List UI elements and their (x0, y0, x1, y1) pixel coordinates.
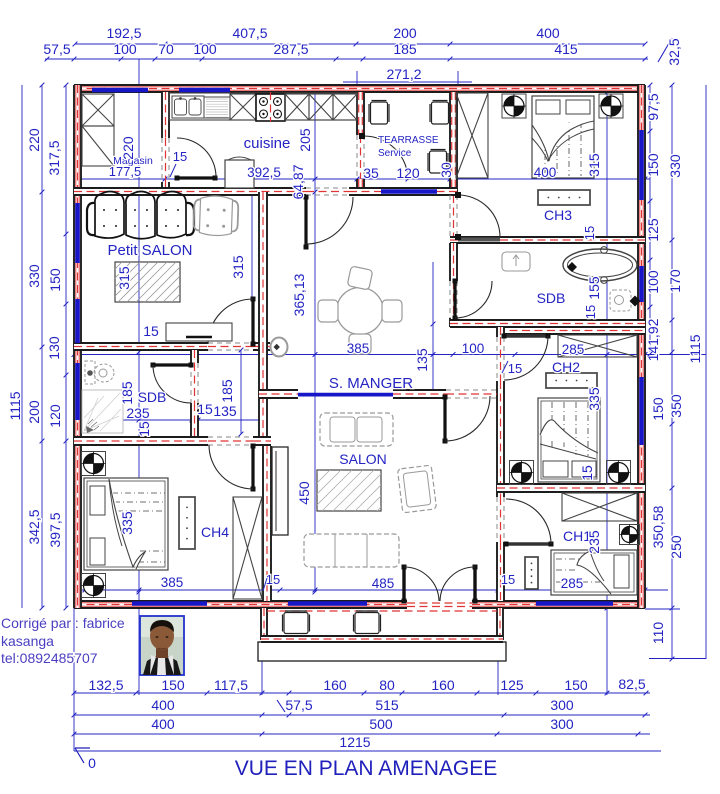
svg-text:70: 70 (158, 41, 174, 57)
svg-text:317,5: 317,5 (46, 140, 62, 175)
svg-text:385: 385 (161, 575, 184, 590)
svg-text:342,5: 342,5 (26, 509, 42, 544)
svg-text:100: 100 (462, 341, 485, 356)
svg-text:120: 120 (47, 404, 63, 428)
svg-text:CH4: CH4 (201, 524, 229, 540)
svg-text:200: 200 (393, 25, 417, 41)
svg-text:200: 200 (26, 400, 42, 424)
svg-text:80: 80 (379, 677, 395, 693)
svg-text:150: 150 (564, 677, 588, 693)
svg-text:315: 315 (230, 255, 246, 279)
svg-text:385: 385 (347, 341, 370, 356)
svg-text:15: 15 (501, 572, 515, 587)
svg-text:15: 15 (579, 465, 595, 481)
svg-text:100: 100 (645, 270, 661, 294)
svg-text:15: 15 (136, 421, 152, 437)
svg-text:400: 400 (151, 697, 175, 713)
svg-text:235: 235 (586, 530, 602, 554)
svg-text:141,92: 141,92 (645, 318, 661, 361)
svg-text:407,5: 407,5 (232, 25, 267, 41)
svg-text:315: 315 (586, 153, 602, 177)
svg-text:15: 15 (143, 323, 159, 339)
svg-text:330: 330 (26, 264, 42, 288)
svg-text:15: 15 (508, 361, 522, 376)
svg-text:287,5: 287,5 (273, 41, 308, 57)
svg-text:235: 235 (126, 405, 150, 421)
svg-text:300: 300 (550, 697, 574, 713)
svg-text:132,5: 132,5 (88, 677, 123, 693)
svg-text:400: 400 (536, 25, 560, 41)
svg-text:150: 150 (645, 153, 661, 177)
svg-text:335: 335 (119, 511, 135, 535)
svg-text:15: 15 (583, 305, 598, 319)
svg-text:392,5: 392,5 (247, 165, 281, 180)
svg-text:135: 135 (414, 348, 430, 372)
svg-text:125: 125 (500, 677, 524, 693)
svg-text:315: 315 (116, 266, 132, 290)
svg-text:Service: Service (378, 148, 412, 159)
svg-text:64,87: 64,87 (290, 164, 306, 199)
svg-text:SDB: SDB (138, 389, 167, 405)
svg-text:330: 330 (667, 154, 683, 178)
svg-text:250: 250 (668, 535, 684, 559)
svg-text:415: 415 (554, 41, 578, 57)
svg-text:35: 35 (363, 165, 379, 181)
svg-text:32,5: 32,5 (666, 38, 682, 65)
svg-text:30: 30 (438, 162, 454, 178)
svg-text:0: 0 (88, 755, 96, 771)
svg-text:150: 150 (650, 397, 666, 421)
svg-text:135: 135 (213, 403, 237, 419)
svg-text:82,5: 82,5 (618, 676, 645, 692)
svg-text:185: 185 (119, 381, 135, 405)
svg-text:97,5: 97,5 (645, 93, 661, 120)
svg-text:485: 485 (372, 576, 395, 591)
svg-text:400: 400 (534, 165, 557, 180)
svg-text:160: 160 (431, 677, 455, 693)
svg-text:Petit SALON: Petit SALON (107, 242, 192, 259)
svg-text:285: 285 (561, 576, 584, 591)
svg-text:CH3: CH3 (544, 207, 572, 223)
svg-text:15: 15 (266, 572, 280, 587)
svg-text:155: 155 (586, 276, 602, 300)
svg-text:15: 15 (173, 149, 187, 164)
svg-text:335: 335 (586, 387, 602, 411)
svg-text:160: 160 (323, 677, 347, 693)
svg-text:SDB: SDB (537, 290, 566, 306)
svg-text:15: 15 (582, 226, 597, 240)
svg-text:400: 400 (151, 716, 175, 732)
svg-text:515: 515 (375, 697, 399, 713)
svg-text:450: 450 (296, 481, 312, 505)
svg-text:170: 170 (667, 269, 683, 293)
svg-text:1115: 1115 (687, 334, 703, 363)
svg-text:S. MANGER: S. MANGER (329, 375, 413, 392)
svg-text:kasanga: kasanga (1, 633, 54, 649)
svg-text:150: 150 (161, 677, 185, 693)
svg-text:365,13: 365,13 (291, 273, 307, 316)
svg-text:57,5: 57,5 (285, 697, 312, 713)
svg-text:120: 120 (396, 165, 420, 181)
svg-text:15: 15 (197, 401, 213, 417)
svg-text:285: 285 (562, 342, 585, 357)
svg-text:350: 350 (668, 394, 684, 418)
svg-text:300: 300 (550, 716, 574, 732)
svg-text:TEARRASSE: TEARRASSE (378, 135, 439, 146)
svg-text:tel:0892485707: tel:0892485707 (1, 650, 98, 666)
svg-text:185: 185 (393, 41, 417, 57)
svg-text:220: 220 (26, 128, 42, 152)
svg-text:500: 500 (369, 716, 393, 732)
svg-text:350,58: 350,58 (650, 505, 666, 548)
svg-text:150: 150 (47, 268, 63, 292)
svg-text:205: 205 (297, 128, 313, 152)
svg-text:117,5: 117,5 (214, 677, 248, 693)
svg-text:SALON: SALON (339, 451, 386, 467)
svg-text:130: 130 (46, 336, 62, 360)
svg-text:100: 100 (113, 41, 137, 57)
svg-text:1115: 1115 (7, 391, 23, 420)
svg-text:177,5: 177,5 (109, 164, 142, 179)
svg-text:271,2: 271,2 (386, 66, 421, 82)
svg-text:57,5: 57,5 (43, 41, 70, 57)
svg-text:VUE EN PLAN AMENAGEE: VUE EN PLAN AMENAGEE (235, 757, 498, 780)
svg-text:220: 220 (120, 136, 136, 160)
svg-text:185: 185 (219, 379, 235, 403)
svg-text:397,5: 397,5 (47, 512, 63, 547)
svg-text:CH2: CH2 (552, 359, 580, 375)
svg-text:Corrigé par : fabrice: Corrigé par : fabrice (1, 615, 125, 631)
svg-text:192,5: 192,5 (106, 25, 141, 41)
svg-text:125: 125 (645, 218, 661, 242)
svg-text:100: 100 (193, 41, 217, 57)
svg-text:cuisine: cuisine (244, 135, 291, 152)
svg-text:110: 110 (650, 622, 666, 645)
svg-text:1215: 1215 (339, 734, 370, 750)
